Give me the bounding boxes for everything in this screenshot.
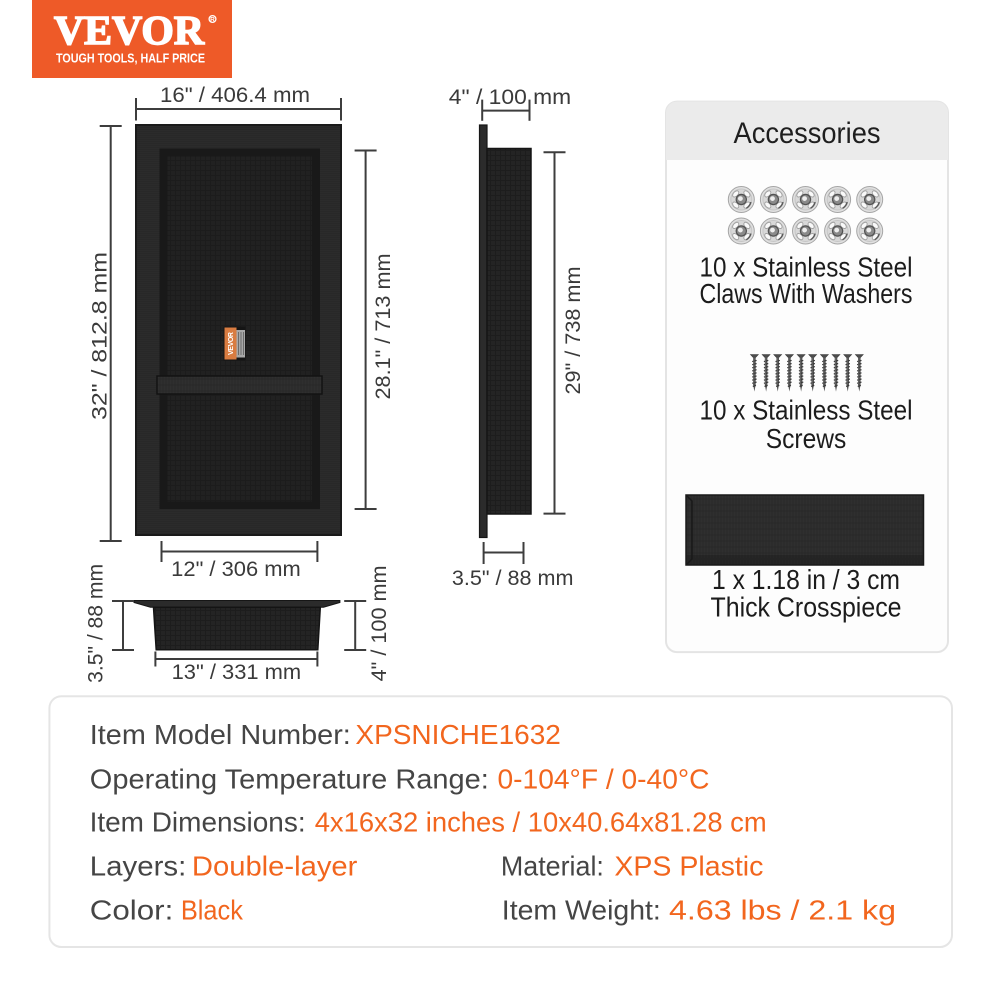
svg-text:29" / 738 mm: 29" / 738 mm	[561, 267, 585, 395]
svg-text:4" / 100 mm: 4" / 100 mm	[449, 85, 571, 109]
svg-text:VEVOR: VEVOR	[228, 332, 235, 355]
svg-text:Layers:: Layers:	[90, 851, 187, 882]
svg-text:13" / 331 mm: 13" / 331 mm	[172, 660, 302, 684]
svg-text:Item Model Number:: Item Model Number:	[90, 719, 351, 750]
svg-text:28.1" / 713 mm: 28.1" / 713 mm	[371, 254, 395, 400]
svg-text:R: R	[210, 16, 215, 23]
svg-text:10 x Stainless Steel: 10 x Stainless Steel	[700, 395, 913, 426]
svg-text:32" / 812.8 mm: 32" / 812.8 mm	[88, 252, 112, 420]
svg-text:XPS Plastic: XPS Plastic	[614, 851, 763, 882]
svg-text:12" / 306 mm: 12" / 306 mm	[171, 557, 301, 581]
svg-text:4x16x32 inches / 10x40.64x81.2: 4x16x32 inches / 10x40.64x81.28 cm	[315, 807, 767, 838]
svg-text:Color:: Color:	[90, 894, 174, 925]
svg-text:0-104°F / 0-40°C: 0-104°F / 0-40°C	[498, 764, 710, 795]
svg-text:Operating Temperature Range:: Operating Temperature Range:	[90, 764, 489, 795]
svg-text:Item Dimensions:: Item Dimensions:	[90, 807, 306, 838]
svg-text:Item Weight:: Item Weight:	[502, 894, 661, 925]
svg-text:XPSNICHE1632: XPSNICHE1632	[355, 719, 561, 750]
svg-text:Material:: Material:	[501, 851, 604, 882]
svg-text:Black: Black	[181, 894, 244, 925]
svg-text:3.5" / 88 mm: 3.5" / 88 mm	[84, 564, 108, 683]
svg-text:4" / 100 mm: 4" / 100 mm	[367, 565, 391, 681]
svg-text:4.63 lbs / 2.1 kg: 4.63 lbs / 2.1 kg	[669, 894, 896, 925]
svg-text:16" / 406.4 mm: 16" / 406.4 mm	[160, 83, 310, 107]
svg-text:Double-layer: Double-layer	[192, 851, 358, 882]
svg-text:Screws: Screws	[766, 423, 847, 454]
svg-text:VEVOR: VEVOR	[54, 7, 204, 53]
svg-text:TOUGH TOOLS, HALF PRICE: TOUGH TOOLS, HALF PRICE	[56, 51, 205, 66]
svg-text:Accessories: Accessories	[734, 117, 881, 150]
svg-text:Thick Crosspiece: Thick Crosspiece	[711, 591, 902, 622]
svg-text:Claws With Washers: Claws With Washers	[700, 278, 913, 309]
svg-text:3.5" / 88 mm: 3.5" / 88 mm	[452, 566, 574, 590]
